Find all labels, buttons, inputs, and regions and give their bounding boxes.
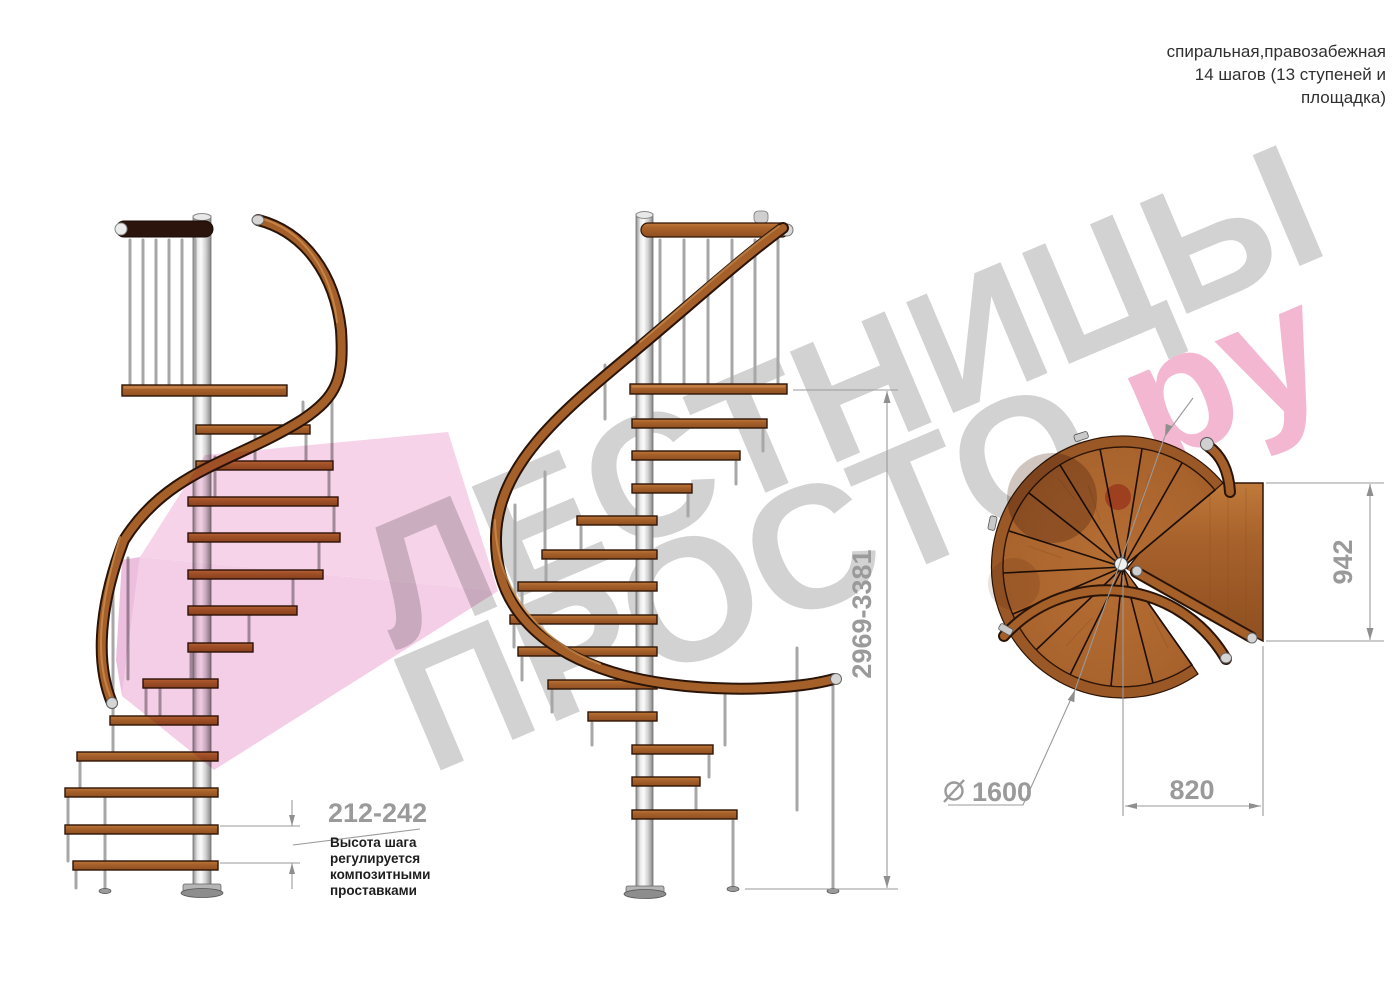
step <box>518 647 657 656</box>
step <box>518 582 657 591</box>
step <box>65 825 218 834</box>
step <box>632 419 767 428</box>
watermark: ЛЕСТНИЦЫ ПРОСТО.ру <box>334 107 1354 810</box>
step <box>632 484 692 493</box>
dim-step-height: 212-242 <box>328 798 427 828</box>
step <box>632 810 737 819</box>
dim-diameter: 1600 <box>972 777 1032 807</box>
note-line4: проставками <box>330 883 417 898</box>
title-line3: площадка) <box>1167 86 1386 109</box>
dim-landing-depth: 942 <box>1328 539 1358 584</box>
dim-total-height: 2969-3381 <box>847 549 877 678</box>
step <box>588 712 657 721</box>
step <box>632 777 700 786</box>
note-line1: Высота шага <box>330 835 417 850</box>
step <box>632 745 713 754</box>
step <box>632 451 740 460</box>
staircase-drawing-page: ЛЕСТНИЦЫ ПРОСТО.ру <box>0 0 1400 1000</box>
top-plan-view <box>988 431 1263 698</box>
step <box>577 516 657 525</box>
title-line2: 14 шагов (13 ступеней и <box>1167 63 1386 86</box>
dim-landing-width: 820 <box>1169 775 1214 805</box>
step <box>73 861 218 870</box>
staircase-drawing: ЛЕСТНИЦЫ ПРОСТО.ру <box>0 0 1400 1000</box>
platform-handrail <box>116 221 213 237</box>
step <box>542 550 657 559</box>
diameter-icon <box>944 780 964 802</box>
title-line1: спиральная,правозабежная <box>1167 40 1386 63</box>
step <box>65 788 218 797</box>
note-line2: регулируется <box>330 851 420 866</box>
title-annotation: спиральная,правозабежная 14 шагов (13 ст… <box>1167 40 1386 109</box>
note-line3: композитными <box>330 867 430 882</box>
